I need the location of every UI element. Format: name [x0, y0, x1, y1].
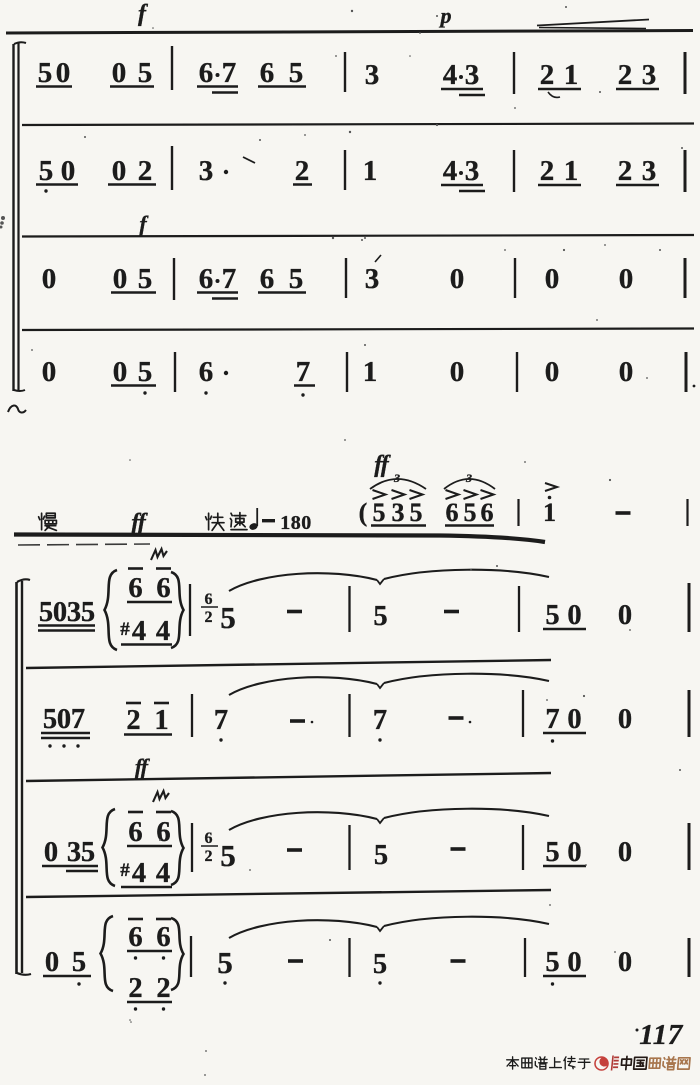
svg-text:1: 1	[154, 705, 168, 736]
svg-text:0: 0	[619, 263, 634, 295]
svg-text:0: 0	[112, 155, 127, 187]
svg-text:6: 6	[128, 817, 142, 848]
svg-text:7: 7	[71, 704, 85, 735]
svg-text:0: 0	[618, 704, 632, 735]
svg-text:6: 6	[446, 498, 459, 527]
svg-text:5: 5	[138, 356, 153, 388]
svg-text:0: 0	[567, 600, 581, 631]
svg-text:5: 5	[289, 263, 304, 295]
svg-text:2: 2	[128, 973, 142, 1004]
svg-text:4: 4	[443, 59, 458, 91]
svg-text:1: 1	[543, 498, 556, 527]
svg-text:5: 5	[220, 838, 236, 873]
svg-text:5: 5	[545, 947, 559, 978]
svg-text:6: 6	[199, 263, 214, 295]
svg-text:7: 7	[545, 704, 559, 735]
svg-text:6: 6	[260, 57, 275, 89]
svg-text:1: 1	[363, 155, 378, 187]
svg-text:0: 0	[567, 947, 581, 978]
svg-text:6: 6	[156, 922, 170, 953]
svg-text:5: 5	[410, 498, 423, 527]
svg-text:5: 5	[464, 498, 477, 527]
svg-text:3: 3	[642, 59, 657, 91]
svg-text:3: 3	[392, 498, 405, 527]
svg-text:3: 3	[67, 837, 81, 868]
svg-text:2: 2	[205, 848, 213, 865]
svg-text:0: 0	[619, 356, 634, 388]
svg-text:5: 5	[373, 601, 387, 632]
svg-text:4: 4	[156, 616, 170, 647]
svg-text:0: 0	[545, 356, 560, 388]
svg-text:2: 2	[138, 155, 153, 187]
svg-text:3: 3	[465, 59, 480, 91]
svg-text:5: 5	[217, 945, 233, 980]
svg-text:0: 0	[45, 947, 59, 978]
svg-text:3: 3	[199, 155, 214, 187]
svg-text:0: 0	[618, 947, 632, 978]
svg-text:7: 7	[296, 356, 311, 388]
svg-text:f: f	[138, 1, 148, 27]
svg-text:2: 2	[540, 59, 555, 91]
svg-text:5: 5	[373, 498, 386, 527]
svg-text:0: 0	[618, 600, 632, 631]
svg-text:1: 1	[564, 155, 579, 187]
svg-text:6: 6	[128, 922, 142, 953]
svg-text:5: 5	[81, 597, 95, 628]
svg-text:0: 0	[618, 837, 632, 868]
svg-text:p: p	[439, 3, 452, 28]
svg-text:1: 1	[564, 59, 579, 91]
svg-text:5: 5	[72, 947, 86, 978]
svg-text:0: 0	[53, 597, 67, 628]
svg-text:6: 6	[156, 573, 170, 604]
svg-text:0: 0	[450, 356, 465, 388]
svg-text:5: 5	[373, 949, 387, 980]
svg-text:0: 0	[113, 263, 128, 295]
svg-text:7: 7	[222, 57, 237, 89]
svg-text:4: 4	[132, 858, 146, 889]
svg-text:(: (	[359, 498, 368, 527]
svg-text:6: 6	[199, 57, 214, 89]
svg-text:6: 6	[205, 830, 213, 847]
svg-text:5: 5	[374, 840, 388, 871]
svg-text:5: 5	[220, 600, 236, 635]
svg-text:ff: ff	[374, 452, 391, 478]
svg-text:4: 4	[132, 616, 146, 647]
svg-text:0: 0	[44, 837, 58, 868]
svg-text:5: 5	[43, 704, 57, 735]
svg-text:#: #	[120, 619, 130, 640]
svg-text:4: 4	[156, 858, 170, 889]
svg-text:3: 3	[67, 597, 81, 628]
svg-text:117: 117	[639, 1019, 683, 1051]
svg-text:ff: ff	[131, 510, 148, 536]
svg-text:0: 0	[61, 155, 76, 187]
svg-text:0: 0	[545, 263, 560, 295]
svg-text:5: 5	[545, 837, 559, 868]
svg-text:0: 0	[113, 356, 128, 388]
svg-text:0: 0	[57, 704, 71, 735]
svg-text:5: 5	[138, 263, 153, 295]
svg-text:2: 2	[295, 155, 310, 187]
svg-text:0: 0	[42, 263, 57, 295]
svg-text:6: 6	[128, 573, 142, 604]
svg-text:6: 6	[481, 498, 494, 527]
svg-text:7: 7	[214, 705, 228, 736]
svg-text:7: 7	[373, 705, 387, 736]
svg-text:3: 3	[642, 155, 657, 187]
svg-text:6: 6	[205, 591, 213, 608]
svg-text:5: 5	[39, 597, 53, 628]
svg-text:3: 3	[365, 263, 380, 295]
svg-text:0: 0	[567, 704, 581, 735]
svg-text:ff: ff	[135, 754, 151, 779]
svg-text:0: 0	[42, 356, 57, 388]
svg-text:4: 4	[443, 155, 458, 187]
svg-text:6: 6	[260, 263, 275, 295]
svg-text:0: 0	[56, 57, 71, 89]
svg-text:7: 7	[222, 263, 237, 295]
svg-text:180: 180	[280, 512, 312, 534]
svg-text:0: 0	[450, 263, 465, 295]
svg-text:2: 2	[126, 705, 140, 736]
svg-text:2: 2	[618, 155, 633, 187]
svg-text:5: 5	[138, 57, 153, 89]
svg-text:3: 3	[393, 471, 400, 485]
svg-text:2: 2	[540, 155, 555, 187]
svg-text:3: 3	[365, 59, 380, 91]
svg-text:1: 1	[363, 356, 378, 388]
svg-text:3: 3	[465, 471, 472, 485]
svg-text:2: 2	[156, 973, 170, 1004]
svg-text:5: 5	[289, 57, 304, 89]
svg-text:2: 2	[205, 609, 213, 626]
svg-text:6: 6	[156, 817, 170, 848]
svg-text:5: 5	[545, 600, 559, 631]
svg-text:0: 0	[112, 57, 127, 89]
svg-text:5: 5	[81, 837, 95, 868]
svg-text:3: 3	[465, 155, 480, 187]
svg-text:5: 5	[38, 57, 53, 89]
svg-text:6: 6	[199, 356, 214, 388]
svg-text:f: f	[139, 211, 149, 236]
svg-text:5: 5	[39, 155, 54, 187]
svg-text:2: 2	[618, 59, 633, 91]
svg-text:0: 0	[567, 837, 581, 868]
svg-text:#: #	[120, 860, 130, 881]
